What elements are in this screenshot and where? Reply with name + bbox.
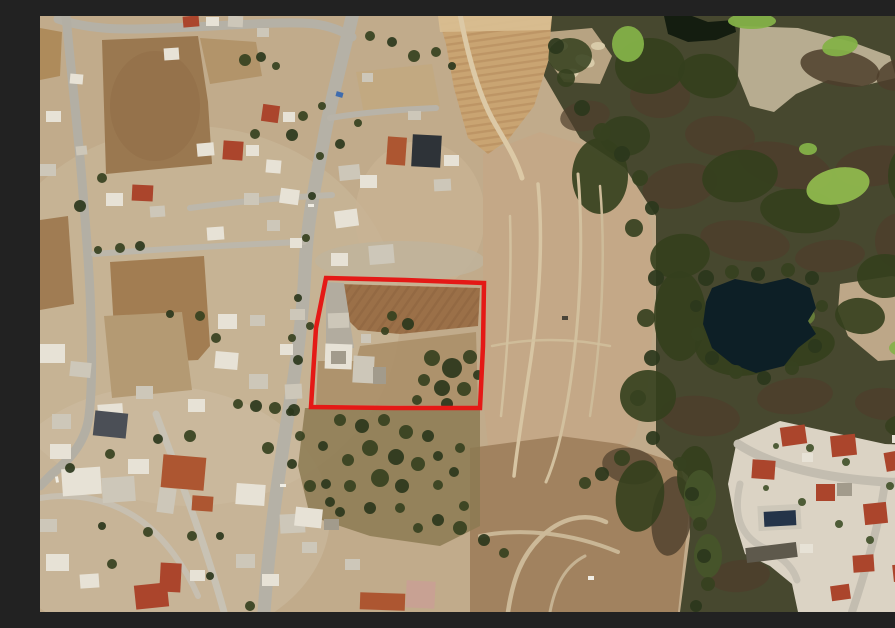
map-layers (40, 16, 895, 612)
aerial-photo (40, 16, 895, 612)
satellite-map-svg (40, 16, 895, 612)
